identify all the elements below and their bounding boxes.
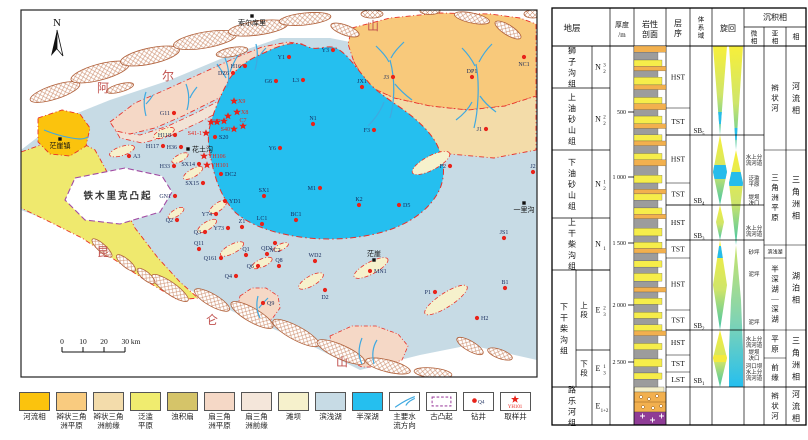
well-label: D5 bbox=[403, 203, 410, 209]
lithology-bed bbox=[634, 287, 666, 292]
well-dot bbox=[234, 274, 238, 278]
lithology-bed bbox=[634, 298, 662, 304]
lithology-bed bbox=[634, 52, 658, 60]
header-sedimentary-facies: 沉积相 bbox=[763, 12, 787, 22]
subfacies-label: 平原 bbox=[771, 335, 779, 354]
lithology-bed bbox=[634, 292, 658, 298]
formation-code: E bbox=[596, 364, 601, 373]
lithology-bed bbox=[634, 66, 666, 71]
well-label: H33 bbox=[160, 164, 170, 170]
formation-code-sup: 1 bbox=[603, 365, 606, 370]
town-marker bbox=[250, 14, 253, 17]
well-dot bbox=[226, 226, 230, 230]
lithology-bed bbox=[634, 46, 666, 52]
member-name: 上段 bbox=[580, 301, 588, 319]
well-label: H36 bbox=[167, 145, 177, 151]
well-dot bbox=[243, 64, 247, 68]
well-label: S20 bbox=[219, 135, 228, 141]
depth-tick-label: 2 500 bbox=[613, 360, 627, 366]
well-label: MN1 bbox=[374, 269, 387, 275]
well-dot bbox=[287, 55, 291, 59]
subfacies-label: 滨浅湖 bbox=[767, 249, 782, 256]
formation-code: N bbox=[595, 180, 601, 189]
well-label: SX15 bbox=[185, 181, 199, 187]
well-label: M1 bbox=[308, 186, 316, 192]
well-dot bbox=[475, 316, 479, 320]
well-dot bbox=[256, 264, 260, 268]
microfacies-label: 流河道 bbox=[746, 341, 763, 349]
lithology-bed bbox=[634, 359, 662, 367]
town-label: 花土沟 bbox=[192, 145, 213, 154]
well-label: NC2 bbox=[269, 248, 280, 254]
lithology-bed bbox=[634, 318, 658, 324]
microfacies-label: 水上分 bbox=[746, 335, 763, 343]
legend-label: 滨浅湖 bbox=[319, 413, 342, 422]
well-label: Q6 bbox=[247, 264, 254, 270]
well-label: F2 bbox=[440, 164, 446, 170]
legend-item: 古凸起 bbox=[423, 392, 460, 438]
well-label: N1 bbox=[309, 116, 316, 122]
depth-tick-label: 2 000 bbox=[613, 303, 627, 309]
well-label: WD2 bbox=[309, 253, 322, 259]
lithology-bed bbox=[634, 267, 658, 273]
well-dot bbox=[331, 48, 335, 52]
depth-tick-label: 1 500 bbox=[613, 241, 627, 247]
well-dot bbox=[260, 222, 264, 226]
well-dot bbox=[219, 172, 223, 176]
well-label: YD1 bbox=[229, 199, 241, 205]
lithology-bed bbox=[634, 153, 662, 159]
systems-tract-label: HST bbox=[671, 155, 686, 164]
legend-item: 滩坝 bbox=[275, 392, 312, 438]
well-dot bbox=[273, 241, 277, 245]
well-dot bbox=[231, 71, 235, 75]
mountain-label: 山 bbox=[367, 19, 379, 33]
well-label: Y3 bbox=[322, 48, 329, 54]
systems-tract-label: TST bbox=[671, 190, 685, 199]
well-dot bbox=[470, 75, 474, 79]
well-dot bbox=[197, 162, 201, 166]
formation-name: 上油砂山组 bbox=[568, 93, 576, 146]
well-dot bbox=[175, 218, 179, 222]
lithology-bed bbox=[634, 219, 658, 228]
drill-well-icon bbox=[472, 398, 477, 403]
well-label: L3 bbox=[292, 78, 299, 84]
well-dot bbox=[179, 145, 183, 149]
legend-label: 扇三角 洲前缘 bbox=[245, 413, 268, 430]
well-dot bbox=[261, 301, 265, 305]
formation-code: E bbox=[596, 306, 601, 315]
legend-swatch bbox=[130, 392, 161, 411]
well-label: Q4 bbox=[225, 274, 232, 280]
well-dot bbox=[318, 186, 322, 190]
formation-code-sub: 3 bbox=[603, 313, 606, 318]
lithology-bed bbox=[634, 60, 662, 66]
legend-item: 半深湖 bbox=[349, 392, 386, 438]
cycle-shapes bbox=[713, 46, 743, 387]
scale-tick-label: 20 bbox=[100, 337, 108, 346]
formation-code-sup: 1 bbox=[603, 181, 606, 186]
header-thickness-unit: /m bbox=[618, 31, 626, 39]
stratigraphic-column: 地层厚度/m岩性剖面层序体系域旋回沉积相微相亚相相狮子沟组N32上油砂山组N22… bbox=[552, 8, 806, 427]
microfacies-label: 水上分 bbox=[746, 153, 763, 161]
lithology-bed bbox=[634, 189, 666, 194]
lithology-bed bbox=[634, 379, 658, 387]
legend-item: 河流相 bbox=[16, 392, 53, 438]
legend-label: 辫状三角 洲前缘 bbox=[94, 413, 124, 430]
lithology-bed bbox=[634, 135, 662, 141]
legend-item: 扇三角 洲平原 bbox=[201, 392, 238, 438]
lithology-bed bbox=[634, 373, 662, 379]
town-label: 一里沟 bbox=[514, 205, 535, 214]
figure-root: N 0102030 km 阿尔山昆仑山铁木里克凸起索尔库里茫崖镇花土沟茫崖一里沟… bbox=[0, 0, 808, 440]
well-label: J2 bbox=[530, 164, 535, 170]
header-subfacies: 亚相 bbox=[772, 30, 779, 46]
town-label: 索尔库里 bbox=[238, 18, 266, 27]
town-marker bbox=[372, 258, 375, 261]
lithology-bed bbox=[634, 183, 658, 189]
legend-item: 辫状三角 洲平原 bbox=[53, 392, 90, 438]
subfacies-label: 辫状河 bbox=[771, 391, 779, 421]
well-label: Y73 bbox=[214, 226, 224, 232]
systems-tract-label: HST bbox=[671, 218, 686, 227]
facies-label: 三角洲相 bbox=[792, 336, 800, 381]
well-dot bbox=[502, 236, 506, 240]
legend-label: 浊积扇 bbox=[171, 413, 194, 422]
legend-symbol bbox=[426, 392, 457, 411]
formation-name: 下干柴沟组 bbox=[560, 302, 568, 355]
lithology-bed bbox=[634, 325, 662, 331]
lithology-bed bbox=[634, 71, 658, 77]
formation-name: 下油砂山组 bbox=[568, 158, 576, 211]
well-dot bbox=[274, 79, 278, 83]
lithology-bed bbox=[634, 312, 662, 318]
legend-swatch bbox=[352, 392, 383, 411]
well-label: H2 bbox=[481, 316, 488, 322]
header-systems-tract: 体系域 bbox=[698, 14, 705, 39]
well-dot bbox=[368, 269, 372, 273]
microfacies-label: 河口坝 bbox=[746, 362, 763, 370]
well-dot bbox=[433, 290, 437, 294]
header-cycle: 旋回 bbox=[720, 23, 736, 33]
well-label: Q161 bbox=[204, 256, 217, 262]
well-label: F3 bbox=[364, 128, 370, 134]
systems-tract-label: TST bbox=[671, 245, 685, 254]
north-label: N bbox=[53, 17, 61, 29]
microfacies-label: 流河道 bbox=[746, 230, 763, 238]
formation-name: 狮子沟组 bbox=[568, 46, 576, 88]
mountain-label: 仑 bbox=[206, 313, 218, 327]
lithology-bed bbox=[634, 124, 666, 129]
sequence-boundary-label: SB1 bbox=[693, 377, 705, 387]
well-label: BC1 bbox=[290, 212, 301, 218]
well-dot bbox=[173, 194, 177, 198]
subfacies-label: 三角洲平原 bbox=[771, 173, 779, 222]
well-dot bbox=[484, 127, 488, 131]
lithology-bed bbox=[634, 304, 658, 312]
legend-label: 古凸起 bbox=[430, 413, 453, 422]
well-label: DC2 bbox=[225, 172, 236, 178]
legend-swatch bbox=[204, 392, 235, 411]
well-dot bbox=[203, 230, 207, 234]
lithology-bed bbox=[634, 116, 662, 124]
well-label: C7 bbox=[239, 118, 246, 124]
town-marker bbox=[58, 137, 61, 140]
legend-label: 半深湖 bbox=[356, 413, 379, 422]
legend-sample-name: YH101 bbox=[508, 405, 523, 410]
well-label: J1 bbox=[477, 127, 482, 133]
well-dot bbox=[391, 75, 395, 79]
legend-label: 滩坝 bbox=[286, 413, 301, 422]
lithology-bed bbox=[634, 90, 658, 98]
paleogeographic-map-and-column: N 0102030 km 阿尔山昆仑山铁木里克凸起索尔库里茫崖镇花土沟茫崖一里沟… bbox=[0, 0, 808, 440]
basal-lithology bbox=[634, 387, 666, 425]
header-lithology: 岩性 bbox=[642, 19, 658, 29]
well-dot bbox=[357, 203, 361, 207]
microfacies-label: 决口 bbox=[748, 199, 759, 207]
microfacies-label: 决口 bbox=[748, 354, 759, 362]
legend-item: Q4钻井 bbox=[460, 392, 497, 438]
formation-code-sub: 2 bbox=[603, 70, 606, 75]
legend-item: YH101取样井 bbox=[497, 392, 534, 438]
lithology-bed bbox=[634, 367, 658, 373]
well-dot bbox=[323, 288, 327, 292]
well-label: JX1 bbox=[357, 79, 367, 85]
formation-code-sup: 2 bbox=[603, 116, 606, 121]
well-dot bbox=[219, 256, 223, 260]
well-label: LC1 bbox=[257, 216, 268, 222]
well-dot bbox=[522, 55, 526, 59]
depth-tick-label: 1 000 bbox=[613, 175, 627, 181]
well-label: S41-1 bbox=[188, 131, 202, 137]
sequence-boundary-label: SB4 bbox=[693, 197, 705, 207]
legend-item: 辫状三角 洲前缘 bbox=[90, 392, 127, 438]
member-name: 下段 bbox=[580, 360, 588, 378]
lithology-bed bbox=[634, 160, 666, 166]
microfacies-label: 泥坪 bbox=[748, 318, 760, 326]
well-label: Q9 bbox=[267, 301, 274, 307]
well-label: A3 bbox=[133, 154, 140, 160]
subfacies-label: 辫状河 bbox=[771, 83, 779, 113]
legend-swatch bbox=[93, 392, 124, 411]
mountain-label: 山 bbox=[336, 355, 348, 369]
systems-tract-label: TST bbox=[671, 359, 685, 368]
formation-code-sup: 2 bbox=[603, 307, 606, 312]
well-dot bbox=[240, 225, 244, 229]
lithology-bed bbox=[634, 194, 662, 200]
well-label: X8 bbox=[241, 110, 248, 116]
header-strat: 地层 bbox=[563, 23, 580, 33]
legend-symbol: YH101 bbox=[500, 392, 531, 411]
facies-label: 河流相 bbox=[792, 81, 800, 115]
lithology-bed bbox=[634, 336, 658, 344]
mountain-label: 昆 bbox=[97, 245, 109, 259]
well-label: S40 bbox=[221, 127, 230, 133]
uplift-label: 铁木里克凸起 bbox=[83, 190, 152, 202]
legend-swatch bbox=[167, 392, 198, 411]
legend-item: 泛滥 平原 bbox=[127, 392, 164, 438]
facies-label: 河流相 bbox=[792, 389, 800, 423]
lithology-bed bbox=[634, 110, 658, 116]
formation-code: N bbox=[595, 115, 601, 124]
microfacies-label: 泥坪 bbox=[748, 270, 760, 278]
well-label: JS1 bbox=[500, 230, 509, 236]
header-facies: 相 bbox=[793, 32, 800, 41]
well-label: P1 bbox=[425, 290, 431, 296]
legend-label: 扇三角 洲平原 bbox=[208, 413, 231, 430]
formation-name: 路乐河组 bbox=[568, 384, 576, 427]
legend-well-name: Q4 bbox=[478, 399, 485, 405]
lithology-bed bbox=[634, 175, 662, 183]
well-dot bbox=[201, 181, 205, 185]
well-dot bbox=[172, 111, 176, 115]
well-dot bbox=[313, 259, 317, 263]
legend-item: 主要水 流方向 bbox=[386, 392, 423, 438]
well-dot bbox=[173, 133, 177, 137]
well-label: DZ6 bbox=[218, 71, 229, 77]
well-dot bbox=[278, 146, 282, 150]
formation-code: N bbox=[595, 240, 601, 249]
formation-name: 上干柴沟组 bbox=[568, 218, 576, 271]
sequence-boundary-label: SB2 bbox=[693, 322, 705, 332]
lithology-bed bbox=[634, 248, 666, 253]
scale-tick-label: 10 bbox=[79, 337, 87, 346]
formation-code-sup: 3 bbox=[603, 64, 606, 69]
lithology-bed bbox=[634, 281, 658, 287]
legend-symbol: Q4 bbox=[463, 392, 494, 411]
header-microfacies: 微相 bbox=[751, 29, 758, 46]
flow-direction-icon bbox=[395, 397, 415, 408]
well-dot bbox=[311, 122, 315, 126]
lithology-bed bbox=[634, 236, 658, 242]
lithology-bed bbox=[634, 141, 666, 146]
paleo-uplift-icon bbox=[432, 397, 451, 406]
lithology-bed bbox=[634, 129, 658, 135]
well-label: Y6 bbox=[269, 146, 276, 152]
microfacies-label: 泛滥 bbox=[748, 174, 760, 182]
sample-well-icon bbox=[511, 395, 519, 403]
facies-label: 三角洲相 bbox=[792, 175, 800, 220]
legend-item: 滨浅湖 bbox=[312, 392, 349, 438]
well-label: B1 bbox=[501, 280, 508, 286]
well-label: H118 bbox=[158, 133, 171, 139]
lithology-bed bbox=[634, 104, 666, 110]
systems-tract-label: TST bbox=[671, 316, 685, 325]
lithology-bed bbox=[634, 273, 662, 281]
depth-tick-label: 500 bbox=[617, 110, 626, 116]
microfacies-label: 水上分 bbox=[746, 224, 763, 232]
well-dot bbox=[277, 264, 281, 268]
formation-code-sub: 1+2 bbox=[601, 409, 609, 414]
well-dot bbox=[301, 78, 305, 82]
formation-code-sub: 2 bbox=[603, 187, 606, 192]
well-label: Y1 bbox=[278, 55, 285, 61]
systems-tract-label: HST bbox=[671, 280, 686, 289]
microfacies-label: 水上分 bbox=[746, 368, 763, 376]
legend-item: 扇三角 洲前缘 bbox=[238, 392, 275, 438]
lithology-bed bbox=[634, 97, 662, 103]
lithology-bed bbox=[634, 343, 662, 349]
well-dot bbox=[360, 85, 364, 89]
mountain-label: 尔 bbox=[162, 68, 174, 83]
legend-label: 辫状三角 洲平原 bbox=[57, 413, 87, 430]
header-lithology2: 剖面 bbox=[642, 29, 658, 39]
header-sequence: 层序 bbox=[674, 19, 682, 38]
microfacies-label: 流河道 bbox=[746, 374, 763, 382]
systems-tract-label: TST bbox=[671, 117, 685, 126]
map-legend: 河流相辫状三角 洲平原辫状三角 洲前缘泛滥 平原浊积扇扇三角 洲平原扇三角 洲前… bbox=[16, 392, 546, 438]
lithology-bed bbox=[634, 208, 662, 214]
lithology-bed bbox=[634, 85, 666, 90]
lithology-bed bbox=[634, 253, 658, 261]
lithology-bed bbox=[634, 242, 662, 248]
facies-label: 湖泊相 bbox=[792, 271, 800, 304]
well-dot bbox=[161, 144, 165, 148]
systems-tract-label: HST bbox=[671, 73, 686, 82]
well-label: SX14 bbox=[181, 162, 195, 168]
well-dot bbox=[372, 128, 376, 132]
sequence-boundary-label: SB3 bbox=[693, 232, 705, 242]
mountain-label: 阿 bbox=[97, 81, 109, 95]
legend-label: 河流相 bbox=[23, 413, 46, 422]
microfacies-label: 平原 bbox=[748, 181, 760, 188]
microfacies-label: 砂坪 bbox=[748, 248, 760, 256]
lithology-bed bbox=[634, 331, 666, 336]
well-label: D2 bbox=[321, 295, 328, 301]
scale-tick-label: 30 km bbox=[122, 337, 141, 346]
lithology-bed bbox=[634, 350, 658, 359]
well-label: J3 bbox=[384, 75, 389, 81]
well-label: Z1 bbox=[239, 219, 246, 225]
formation-code: N bbox=[595, 63, 601, 72]
well-dot bbox=[223, 199, 227, 203]
sequence-boundary-label: SB5 bbox=[693, 127, 705, 137]
microfacies-label: 堤坝 bbox=[748, 193, 760, 201]
well-label: Q8 bbox=[275, 258, 282, 264]
town-label: 茫崖 bbox=[367, 249, 381, 258]
well-label: Q1 bbox=[242, 247, 249, 253]
well-dot bbox=[448, 164, 452, 168]
legend-symbol bbox=[389, 392, 420, 411]
legend-label: 取样井 bbox=[504, 413, 527, 422]
well-label: Y74 bbox=[202, 212, 212, 218]
subfacies-label: 半深湖—深湖 bbox=[770, 264, 779, 324]
well-dot bbox=[503, 286, 507, 290]
well-dot bbox=[262, 194, 266, 198]
formation-code-sub: 3 bbox=[603, 372, 606, 377]
legend-label: 主要水 流方向 bbox=[393, 413, 416, 430]
lithology-bed bbox=[634, 200, 658, 208]
legend-swatch bbox=[56, 392, 87, 411]
legend-swatch bbox=[241, 392, 272, 411]
header-thickness: 厚度 bbox=[615, 20, 629, 29]
legend-item: 浊积扇 bbox=[164, 392, 201, 438]
lithology-bed bbox=[634, 77, 662, 85]
lithology-bed bbox=[634, 261, 662, 267]
town-marker bbox=[522, 201, 525, 204]
well-dot bbox=[172, 164, 176, 168]
legend-label: 泛滥 平原 bbox=[138, 413, 153, 430]
lithology-bed bbox=[634, 146, 658, 154]
well-label: YH101 bbox=[211, 163, 229, 169]
well-dot bbox=[214, 212, 218, 216]
formation-code-sub: 2 bbox=[603, 122, 606, 127]
well-label: G11 bbox=[160, 111, 170, 117]
lithology-bed bbox=[634, 214, 666, 219]
well-dot bbox=[213, 135, 217, 139]
lithology-bed bbox=[634, 166, 658, 175]
well-label: Q11 bbox=[194, 241, 204, 247]
